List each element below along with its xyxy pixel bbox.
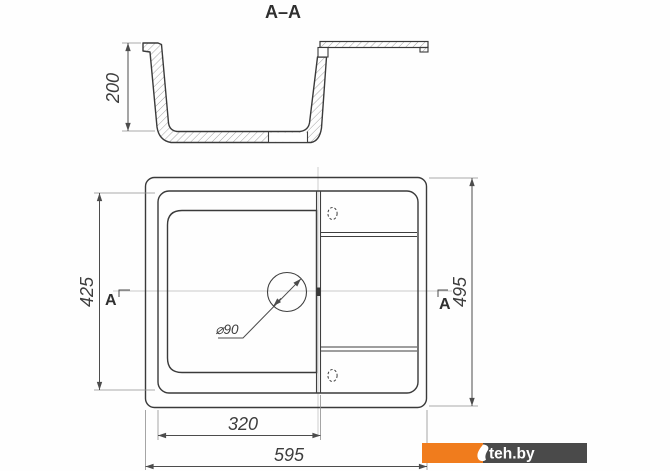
section-marker-left-letter: A (105, 292, 117, 309)
watermark: teh.by (422, 443, 587, 463)
dim-320-value: 320 (228, 414, 258, 434)
dim-drain-value: ⌀90 (215, 322, 239, 337)
section-marker-left: A (105, 290, 130, 309)
section-drainboard-end-lip (420, 48, 428, 53)
dim-425-value: 425 (77, 276, 97, 307)
section-rim-step (318, 48, 328, 58)
section-drain-gap (269, 133, 308, 142)
dim-overall-width: 595 (146, 410, 428, 470)
plan-bowl (168, 211, 317, 373)
watermark-orange-bar (422, 443, 483, 463)
dim-depth-value: 200 (103, 73, 123, 104)
technical-drawing-sink: A–A 200 (0, 0, 670, 471)
dim-drain-arrow-inner (273, 298, 281, 306)
section-view: A–A 200 (103, 2, 428, 143)
dim-bowl-width: 320 (158, 395, 321, 440)
divider-cut-tick (317, 288, 322, 297)
dim-595-value: 595 (274, 445, 305, 465)
plan-view: ⌀90 A A 425 495 320 (77, 167, 478, 470)
dim-depth: 200 (103, 43, 155, 131)
dim-495-value: 495 (450, 276, 470, 307)
drawing-canvas: A–A 200 (0, 0, 670, 471)
tap-hole-top (328, 208, 337, 220)
section-bowl-outline (143, 43, 327, 143)
tap-hole-bottom (328, 370, 337, 382)
section-title: A–A (265, 2, 301, 22)
dim-drain: ⌀90 (215, 279, 301, 338)
dim-overall-height: 495 (429, 178, 478, 406)
watermark-text: teh.by (489, 446, 535, 463)
section-drainboard-plate (320, 42, 428, 48)
